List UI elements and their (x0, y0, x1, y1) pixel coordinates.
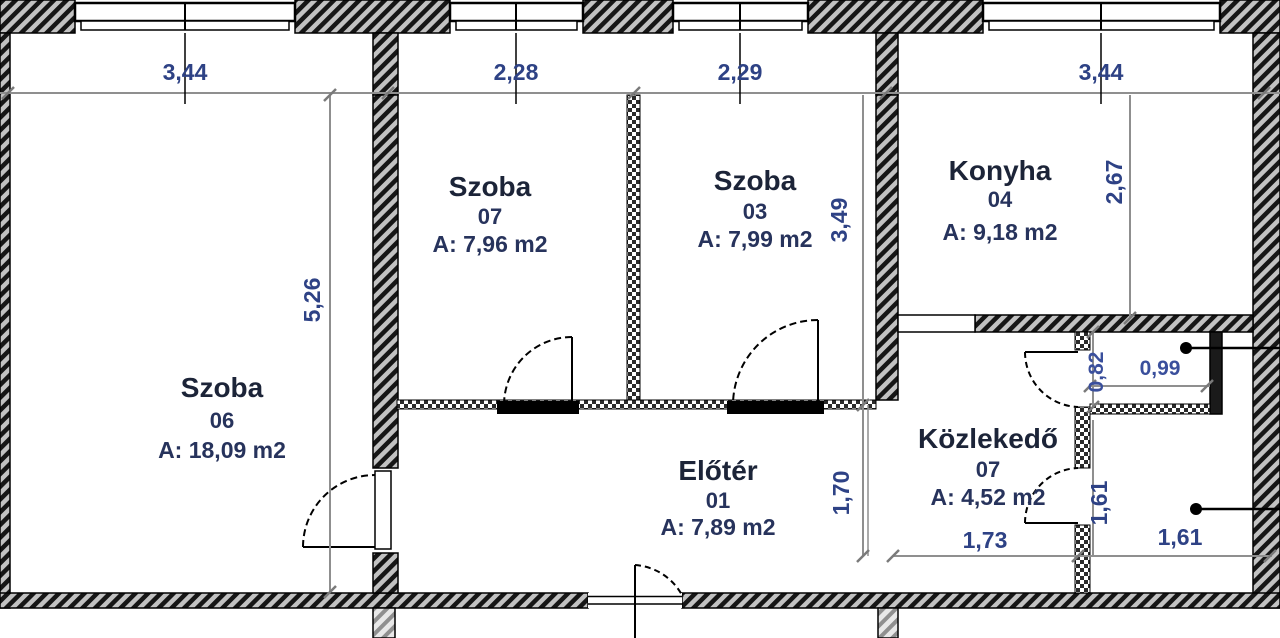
wall-kitchen-bottom (975, 315, 1253, 332)
room-szoba03-number: 03 (743, 199, 767, 224)
window-szoba07 (450, 3, 583, 30)
door-szoba07-threshold (498, 402, 578, 413)
room-szoba07-name: Szoba (449, 171, 532, 202)
partition-closet-bath (1090, 404, 1210, 414)
szoba06-door-jamb (375, 471, 391, 549)
dim-closet-height: 0,82 (1085, 352, 1108, 393)
wall-top-5 (1220, 0, 1280, 33)
floor-plan-drawing: 3,44 2,28 2,29 3,44 5,26 3,49 2,67 0,82 … (0, 0, 1280, 638)
wall-stub-right (878, 608, 898, 638)
wall-top-4 (808, 0, 983, 33)
window-szoba06 (75, 3, 295, 30)
wall-szoba06-upper (373, 95, 398, 468)
room-konyha-name: Konyha (949, 155, 1052, 186)
dim-kitchen-height: 2,67 (1101, 160, 1127, 205)
room-kozlekedo-name: Közlekedő (918, 423, 1058, 454)
wall-right (1253, 33, 1280, 608)
partition-szoba07-szoba03 (627, 95, 640, 404)
wall-top-2 (295, 0, 450, 33)
room-kozlekedo-number: 07 (976, 457, 1000, 482)
dim-bath-width: 1,61 (1158, 524, 1203, 550)
wall-stub-left (373, 608, 395, 638)
kitchen-doorway-opening (898, 315, 975, 332)
room-szoba06-number: 06 (210, 408, 234, 433)
dim-top-konyha: 3,44 (1079, 59, 1124, 85)
wall-bottom-left (0, 593, 588, 608)
dim-middle-height: 3,49 (826, 198, 852, 243)
dim-corridor-width: 1,73 (963, 527, 1008, 553)
room-szoba03-area: A: 7,99 m2 (697, 226, 812, 252)
dim-top-szoba07: 2,28 (494, 59, 539, 85)
room-eloter-area: A: 7,89 m2 (660, 514, 775, 540)
dim-hall-height: 1,70 (828, 471, 854, 516)
wall-bottom-right (682, 593, 1280, 608)
dim-bath-height: 1,61 (1086, 480, 1112, 525)
wall-closet-right (1210, 332, 1222, 414)
room-szoba03-name: Szoba (714, 165, 797, 196)
dim-closet-width: 0,99 (1140, 357, 1181, 380)
wall-top-1 (0, 0, 75, 33)
room-kozlekedo-area: A: 4,52 m2 (930, 484, 1045, 510)
room-eloter-name: Előtér (678, 455, 757, 486)
wall-top-3 (583, 0, 673, 33)
room-szoba07-number: 07 (478, 204, 502, 229)
partition-kozlekedo-3 (1075, 525, 1090, 593)
room-szoba06-name: Szoba (181, 372, 264, 403)
room-szoba06-area: A: 18,09 m2 (158, 437, 286, 463)
window-konyha (983, 3, 1220, 30)
dim-top-szoba03: 2,29 (718, 59, 763, 85)
door-szoba03-threshold (728, 402, 823, 413)
room-konyha-area: A: 9,18 m2 (942, 219, 1057, 245)
dim-szoba06-height: 5,26 (299, 278, 325, 323)
window-szoba03 (673, 3, 808, 30)
wall-left (0, 33, 10, 608)
partition-kozlekedo-1 (1075, 332, 1090, 350)
wall-szoba06-lower (373, 553, 398, 593)
wall-middle (876, 95, 898, 400)
room-szoba07-area: A: 7,96 m2 (432, 231, 547, 257)
partition-kozlekedo-2 (1075, 407, 1090, 468)
room-eloter-number: 01 (706, 488, 730, 513)
dim-top-szoba06: 3,44 (163, 59, 208, 85)
wall-szoba06-top-band (373, 33, 398, 95)
wall-middle-top-band (876, 33, 898, 95)
floor-plan-page: 3,44 2,28 2,29 3,44 5,26 3,49 2,67 0,82 … (0, 0, 1280, 638)
room-konyha-number: 04 (988, 187, 1013, 212)
